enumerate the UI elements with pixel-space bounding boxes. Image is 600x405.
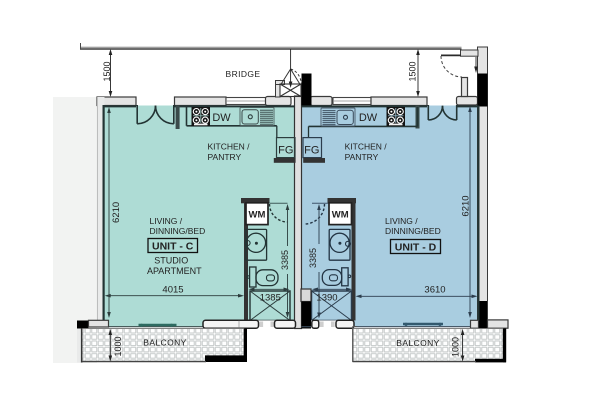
svg-text:DW: DW (212, 112, 231, 124)
svg-text:6210: 6210 (111, 202, 122, 223)
svg-text:BRIDGE: BRIDGE (226, 69, 261, 79)
svg-text:BALCONY: BALCONY (396, 338, 439, 348)
svg-text:1385: 1385 (260, 292, 281, 303)
svg-text:KITCHEN /: KITCHEN / (208, 142, 251, 152)
svg-text:1000: 1000 (451, 337, 461, 357)
svg-text:4015: 4015 (162, 284, 183, 295)
svg-text:WM: WM (249, 210, 266, 221)
svg-text:UNIT - D: UNIT - D (395, 242, 437, 254)
svg-text:DINNING/BED: DINNING/BED (385, 226, 441, 236)
svg-text:STUDIO: STUDIO (154, 255, 188, 265)
svg-text:LIVING /: LIVING / (150, 216, 183, 226)
svg-text:UNIT - C: UNIT - C (152, 241, 194, 253)
svg-text:3385: 3385 (308, 248, 318, 268)
svg-text:LIVING /: LIVING / (385, 216, 418, 226)
svg-text:DW: DW (359, 112, 378, 124)
svg-text:BALCONY: BALCONY (143, 338, 186, 348)
svg-text:PANTRY: PANTRY (345, 152, 379, 162)
svg-text:1000: 1000 (113, 336, 123, 356)
svg-text:KITCHEN /: KITCHEN / (345, 142, 388, 152)
svg-text:DINNING/BED: DINNING/BED (150, 226, 206, 236)
svg-text:1390: 1390 (316, 292, 337, 303)
svg-text:3385: 3385 (280, 250, 290, 270)
svg-text:PANTRY: PANTRY (208, 152, 242, 162)
svg-text:WM: WM (332, 210, 349, 221)
svg-text:1500: 1500 (408, 61, 418, 81)
svg-text:1500: 1500 (102, 61, 112, 81)
svg-text:FG: FG (278, 145, 293, 157)
svg-text:3610: 3610 (424, 285, 445, 296)
svg-text:FG: FG (304, 145, 319, 157)
svg-text:6210: 6210 (460, 195, 471, 216)
svg-text:APARTMENT: APARTMENT (147, 266, 202, 276)
